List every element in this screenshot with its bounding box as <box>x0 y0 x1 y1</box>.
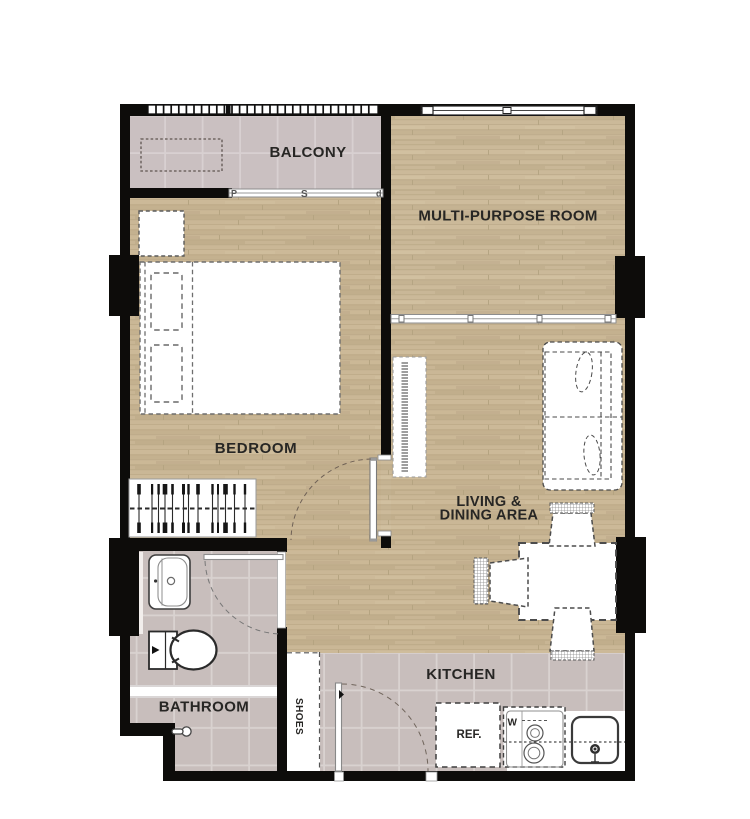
svg-text:KITCHEN: KITCHEN <box>426 666 495 683</box>
svg-text:SHOES: SHOES <box>293 698 304 735</box>
svg-text:REF.: REF. <box>457 729 482 741</box>
svg-text:S: S <box>301 189 308 200</box>
svg-text:BEDROOM: BEDROOM <box>215 440 298 457</box>
svg-text:MULTI-PURPOSE ROOM: MULTI-PURPOSE ROOM <box>418 208 597 225</box>
svg-text:d: d <box>376 189 382 199</box>
svg-text:W: W <box>508 718 518 729</box>
svg-text:BATHROOM: BATHROOM <box>159 699 249 716</box>
svg-text:DINING AREA: DINING AREA <box>440 508 539 524</box>
svg-text:BALCONY: BALCONY <box>270 144 347 161</box>
svg-text:P: P <box>231 189 237 199</box>
